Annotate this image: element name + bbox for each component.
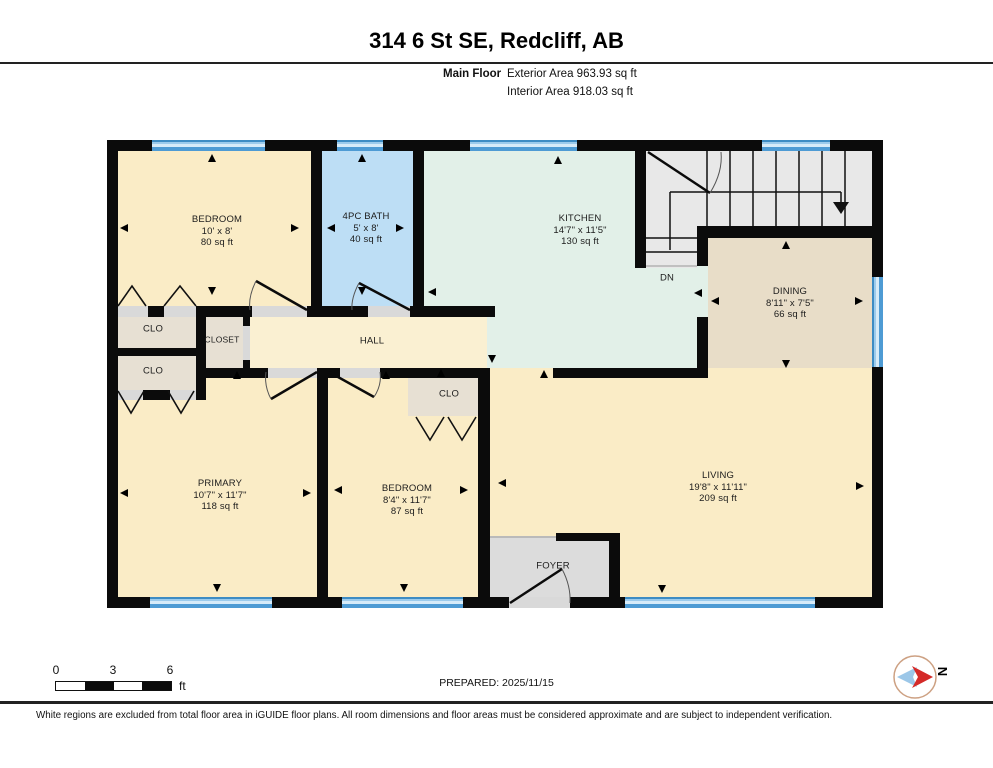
window bbox=[872, 277, 883, 367]
room-label-clo-bedroom: CLO bbox=[439, 388, 459, 400]
dimension-arrow bbox=[213, 584, 221, 592]
compass-icon bbox=[892, 654, 938, 700]
door-opening bbox=[268, 368, 317, 378]
room-area: 80 sq ft bbox=[192, 237, 242, 249]
room-label-bedroom-top: BEDROOM 10' x 8' 80 sq ft bbox=[192, 214, 242, 249]
wall bbox=[478, 368, 490, 597]
room-name: LIVING bbox=[689, 470, 747, 482]
page-title: 314 6 St SE, Redcliff, AB bbox=[0, 28, 993, 54]
scale-tick-0: 0 bbox=[53, 663, 60, 677]
room-name: BEDROOM bbox=[192, 214, 242, 226]
wall bbox=[196, 306, 206, 400]
closet-opening bbox=[118, 306, 148, 317]
entry-door-opening bbox=[509, 597, 570, 608]
dimension-arrow bbox=[396, 224, 404, 232]
room-name: BEDROOM bbox=[382, 483, 432, 495]
disclaimer-text: White regions are excluded from total fl… bbox=[36, 710, 832, 721]
dimension-arrow bbox=[208, 287, 216, 295]
room-name: PRIMARY bbox=[193, 478, 246, 490]
room-label-kitchen: KITCHEN 14'7" x 11'5" 130 sq ft bbox=[553, 213, 606, 248]
room-label-bath: 4PC BATH 5' x 8' 40 sq ft bbox=[343, 211, 390, 246]
dimension-arrow bbox=[782, 360, 790, 368]
wall bbox=[697, 226, 878, 238]
room-label-clo-upper: CLO bbox=[143, 323, 163, 335]
dimension-arrow bbox=[488, 355, 496, 363]
closet-opening bbox=[170, 390, 196, 400]
dimension-arrow bbox=[120, 224, 128, 232]
wall bbox=[609, 533, 620, 597]
room-area: 40 sq ft bbox=[343, 234, 390, 246]
dimension-arrow bbox=[327, 224, 335, 232]
wall bbox=[872, 140, 883, 608]
dimension-arrow bbox=[460, 486, 468, 494]
dimension-arrow bbox=[658, 585, 666, 593]
footer-divider bbox=[0, 701, 993, 704]
floor-name-label: Main Floor bbox=[443, 68, 501, 80]
dimension-arrow bbox=[428, 288, 436, 296]
dimension-arrow bbox=[498, 479, 506, 487]
room-dims: 8'11" x 7'5" bbox=[766, 297, 814, 309]
dimension-arrow bbox=[233, 371, 241, 379]
scale-tick-3: 3 bbox=[110, 663, 117, 677]
room-label-primary: PRIMARY 10'7" x 11'7" 118 sq ft bbox=[193, 478, 246, 513]
door-opening bbox=[368, 306, 410, 317]
wall bbox=[107, 140, 118, 608]
room-label-living: LIVING 19'8" x 11'11" 209 sq ft bbox=[689, 470, 747, 505]
dimension-arrow bbox=[208, 154, 216, 162]
door-opening bbox=[340, 368, 380, 378]
wall bbox=[413, 140, 424, 317]
dimension-arrow bbox=[856, 482, 864, 490]
floor-plan-page: 314 6 St SE, Redcliff, AB Main Floor Ext… bbox=[0, 0, 993, 768]
wall bbox=[553, 368, 708, 378]
room-label-foyer: FOYER bbox=[536, 560, 569, 572]
dimension-arrow bbox=[711, 297, 719, 305]
prepared-date-label: PREPARED: 2025/11/15 bbox=[0, 677, 993, 689]
window bbox=[152, 140, 265, 151]
dimension-arrow bbox=[291, 224, 299, 232]
dimension-arrow bbox=[120, 489, 128, 497]
room-dims: 10'7" x 11'7" bbox=[193, 489, 246, 501]
exterior-area-label: Exterior Area 963.93 sq ft bbox=[507, 68, 637, 80]
dimension-arrow bbox=[437, 369, 445, 377]
dimension-arrow bbox=[554, 156, 562, 164]
room-name: DINING bbox=[766, 286, 814, 298]
closet-opening bbox=[164, 306, 196, 317]
room-label-closet: CLOSET bbox=[205, 334, 240, 346]
compass-north-label: N bbox=[935, 667, 950, 676]
dimension-arrow bbox=[358, 287, 366, 295]
dimension-arrow bbox=[358, 154, 366, 162]
door-opening bbox=[243, 326, 250, 360]
door-opening bbox=[252, 306, 307, 317]
room-area: 87 sq ft bbox=[382, 506, 432, 518]
room-name: 4PC BATH bbox=[343, 211, 390, 223]
stairs-down-label: DN bbox=[660, 272, 674, 284]
room-dims: 19'8" x 11'11" bbox=[689, 481, 747, 493]
dimension-arrow bbox=[400, 584, 408, 592]
window bbox=[625, 597, 815, 608]
dimension-arrow bbox=[855, 297, 863, 305]
dimension-arrow bbox=[694, 289, 702, 297]
dimension-arrow bbox=[303, 489, 311, 497]
stairs-floor bbox=[640, 145, 878, 233]
room-dims: 14'7" x 11'5" bbox=[553, 224, 606, 236]
room-label-dining: DINING 8'11" x 7'5" 66 sq ft bbox=[766, 286, 814, 321]
room-label-hall: HALL bbox=[360, 335, 384, 347]
window bbox=[150, 597, 272, 608]
room-label-clo-lower: CLO bbox=[143, 365, 163, 377]
wall bbox=[112, 348, 203, 356]
wall bbox=[311, 140, 322, 317]
wall bbox=[317, 368, 328, 597]
dimension-arrow bbox=[782, 241, 790, 249]
header-divider bbox=[0, 62, 993, 64]
interior-area-label: Interior Area 918.03 sq ft bbox=[507, 86, 633, 98]
room-area: 209 sq ft bbox=[689, 493, 747, 505]
room-area: 118 sq ft bbox=[193, 501, 246, 513]
window bbox=[337, 140, 383, 151]
dimension-arrow bbox=[382, 371, 390, 379]
room-label-bedroom-bottom: BEDROOM 8'4" x 11'7" 87 sq ft bbox=[382, 483, 432, 518]
window bbox=[762, 140, 830, 151]
room-name: KITCHEN bbox=[553, 213, 606, 225]
stairs-landing-floor bbox=[640, 233, 703, 268]
dimension-arrow bbox=[334, 486, 342, 494]
room-dims: 10' x 8' bbox=[192, 225, 242, 237]
room-dims: 5' x 8' bbox=[343, 222, 390, 234]
dimension-arrow bbox=[540, 370, 548, 378]
room-dims: 8'4" x 11'7" bbox=[382, 494, 432, 506]
room-area: 130 sq ft bbox=[553, 236, 606, 248]
window bbox=[470, 140, 577, 151]
room-area: 66 sq ft bbox=[766, 309, 814, 321]
window bbox=[342, 597, 463, 608]
wall bbox=[635, 140, 646, 268]
closet-opening bbox=[118, 390, 143, 400]
scale-tick-6: 6 bbox=[167, 663, 174, 677]
